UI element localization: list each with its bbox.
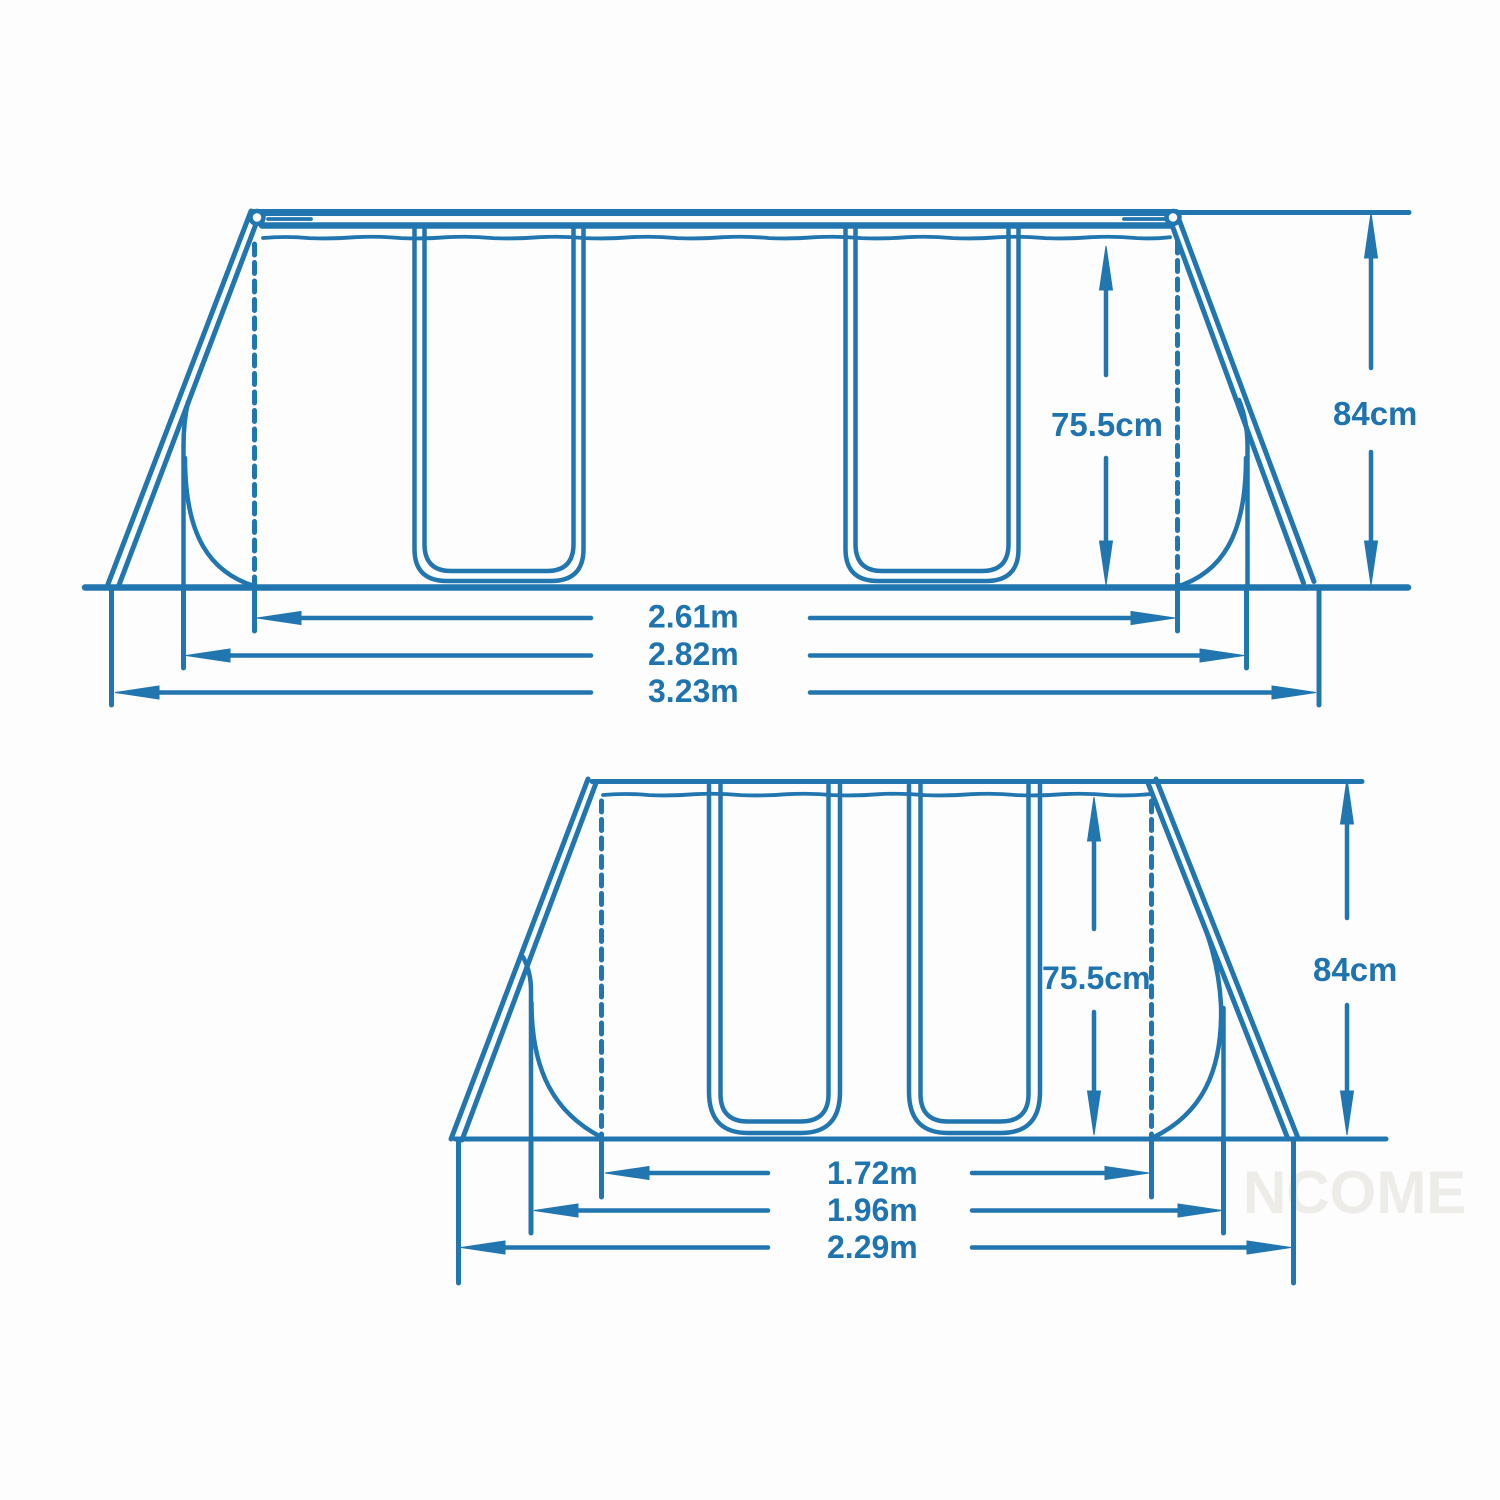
svg-text:2.29m: 2.29m [827,1229,918,1265]
svg-text:84cm: 84cm [1333,395,1417,432]
svg-text:3.23m: 3.23m [648,673,739,709]
svg-text:1.96m: 1.96m [827,1192,918,1228]
svg-text:1.72m: 1.72m [827,1155,918,1191]
svg-text:2.82m: 2.82m [648,636,739,672]
svg-text:2.61m: 2.61m [648,599,739,635]
svg-text:75.5cm: 75.5cm [1042,960,1151,996]
svg-text:75.5cm: 75.5cm [1051,406,1163,443]
svg-text:NCOME: NCOME [1243,1159,1466,1226]
svg-text:84cm: 84cm [1313,951,1397,988]
